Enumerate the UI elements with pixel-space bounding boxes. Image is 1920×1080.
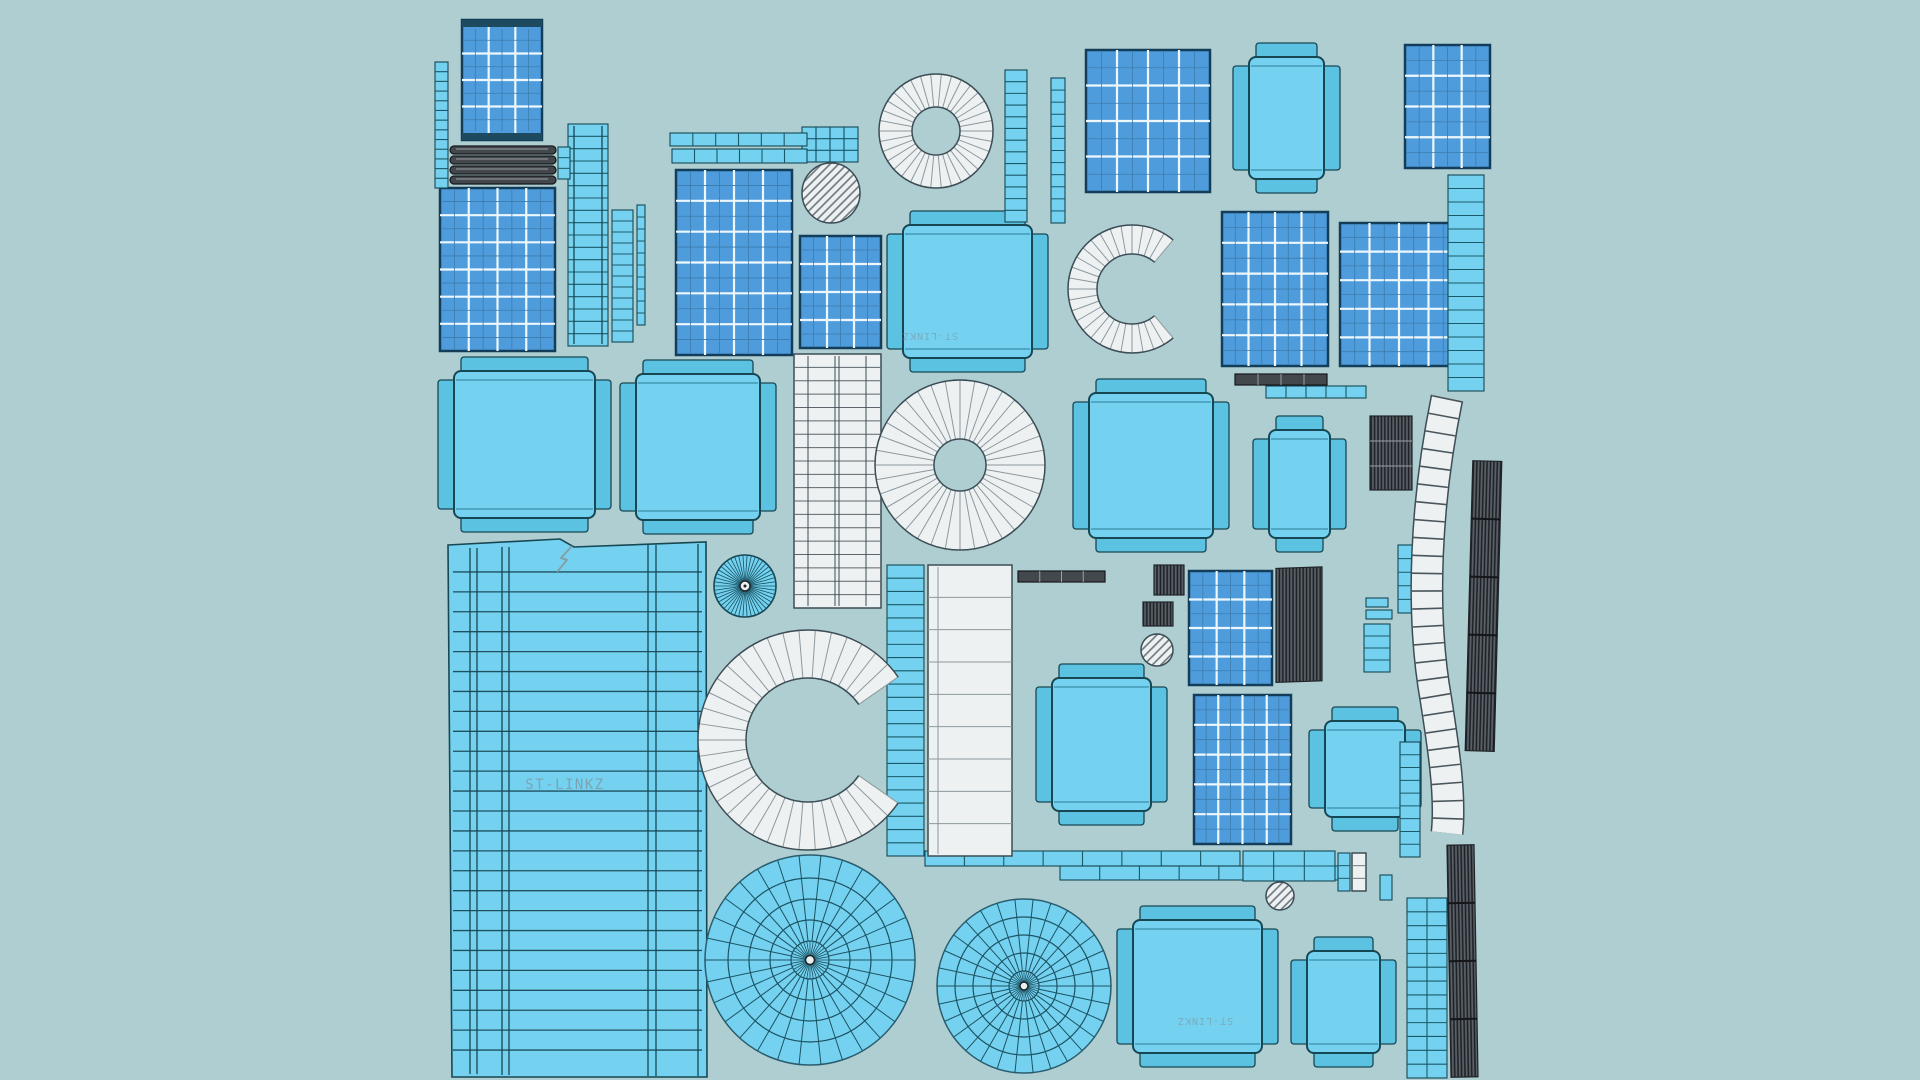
solar-panel-small-c [1194,695,1291,844]
dark-vstripe-panel [1276,567,1322,683]
module-d [1253,416,1346,552]
ladder-right-mid [1400,742,1420,857]
uv-atlas-canvas: ST-LINKZ ST-LINKZ ST-LINKZ [0,0,1920,1080]
big-striped-panel [448,539,707,1077]
hatch-circle-a [802,163,860,223]
plain-strip [637,205,645,325]
solar-panel-small-b [1189,571,1272,685]
module-a [438,357,611,532]
solar-panel-right-a [1222,212,1328,366]
module-e [1036,664,1167,825]
solar-panel-small-a [800,236,881,348]
hatch-circle-b [1141,634,1173,666]
solar-panel-tall [462,20,542,140]
white-striped-panel [794,354,881,608]
dark-strip-h-a [1235,374,1327,385]
dark-strip-h-b [1018,571,1105,582]
solar-panel-mid [676,170,792,355]
dark-pill-bars [450,146,570,184]
white-curved-band-right [1427,398,1448,833]
uv-islands-svg [0,0,1920,1080]
white-donut-small [879,74,993,188]
ladder-bottom-right [1407,898,1447,1078]
model-label-module-bottom: ST-LINKZ [1174,1015,1236,1026]
fan-large [705,855,915,1065]
module-b [620,360,776,534]
radial-disc-small [714,555,776,617]
hatch-circle-c [1266,882,1294,910]
c-arc-top [1068,225,1196,353]
small-grid-cyan [802,127,858,162]
fan-medium [937,899,1111,1073]
cyan-curved-band [887,565,924,856]
ladder-strip-a [435,62,448,188]
h-strips-top [670,133,807,163]
solar-panel-top-far-right [1405,45,1490,168]
strip-h-cyan [1266,386,1366,398]
dark-hatch-bar-c [1447,845,1478,1077]
solar-panel-left-large [440,188,555,351]
module-top-right [1233,43,1340,193]
module-bottom-a [1117,906,1278,1067]
tapered-ladder-wide [568,124,608,346]
white-band-tall [928,565,1012,856]
strip-pair-bottom [1338,853,1392,900]
model-label-main: ST-LINKZ [517,777,613,793]
dark-mini-grid-a [1154,565,1184,595]
solar-panel-right-b [1340,223,1458,366]
ladder-strip-d [1051,78,1065,223]
c-arc-large [698,630,918,850]
module-c [1073,379,1229,552]
ladder-strip-b [612,210,633,342]
dark-mini-grid-b [1143,602,1173,626]
module-top-center [887,211,1048,372]
tapered-strip-right [1448,175,1484,391]
ladder-strip-c [1005,70,1027,222]
solar-panel-top-right [1086,50,1210,192]
module-bottom-b [1291,937,1396,1067]
white-donut-large [875,380,1045,550]
model-label-module-top: ST-LINKZ [899,330,961,341]
dark-hatch-bar-a [1370,416,1412,490]
h-strip-wide [1243,851,1335,881]
dark-hatch-bar-b [1465,461,1502,752]
